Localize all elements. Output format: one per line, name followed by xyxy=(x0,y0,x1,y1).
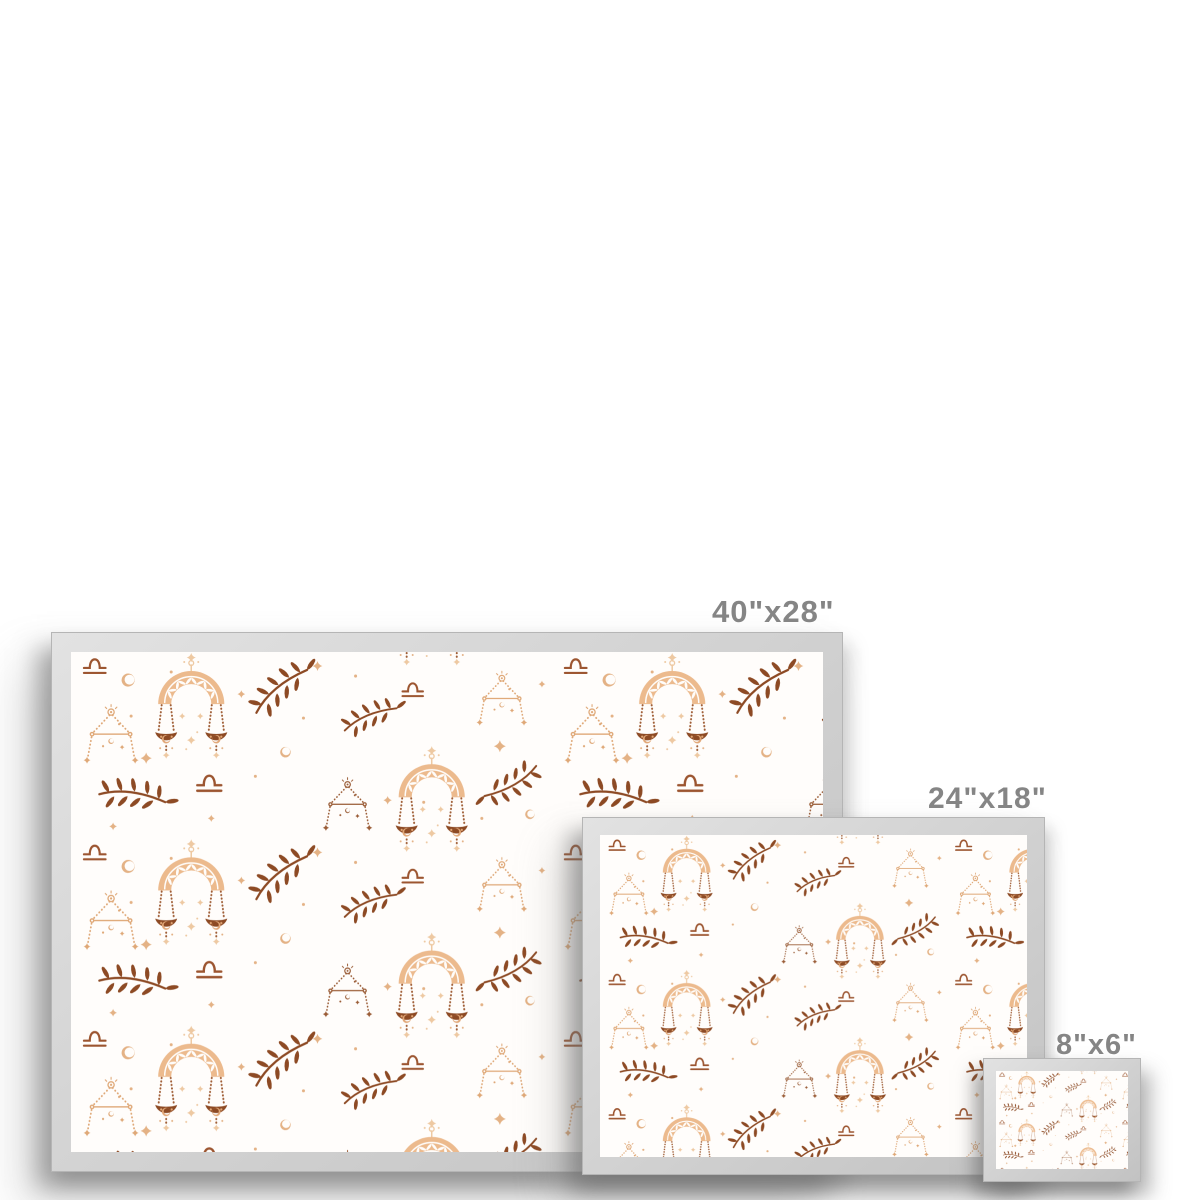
product-mockup-stage: 40"x28" 24"x18" 8"x6" xyxy=(0,0,1200,1200)
framed-print-24x18 xyxy=(582,817,1045,1175)
framed-print-8x6 xyxy=(983,1058,1141,1182)
libra-pattern-artwork-small xyxy=(996,1071,1128,1169)
size-label-8x6: 8"x6" xyxy=(1056,1029,1137,1062)
size-label-24x18: 24"x18" xyxy=(928,782,1047,816)
libra-pattern-artwork-medium xyxy=(600,835,1027,1157)
art-print-8x6 xyxy=(996,1071,1128,1169)
art-print-24x18 xyxy=(600,835,1027,1157)
size-label-40x28: 40"x28" xyxy=(712,594,835,630)
